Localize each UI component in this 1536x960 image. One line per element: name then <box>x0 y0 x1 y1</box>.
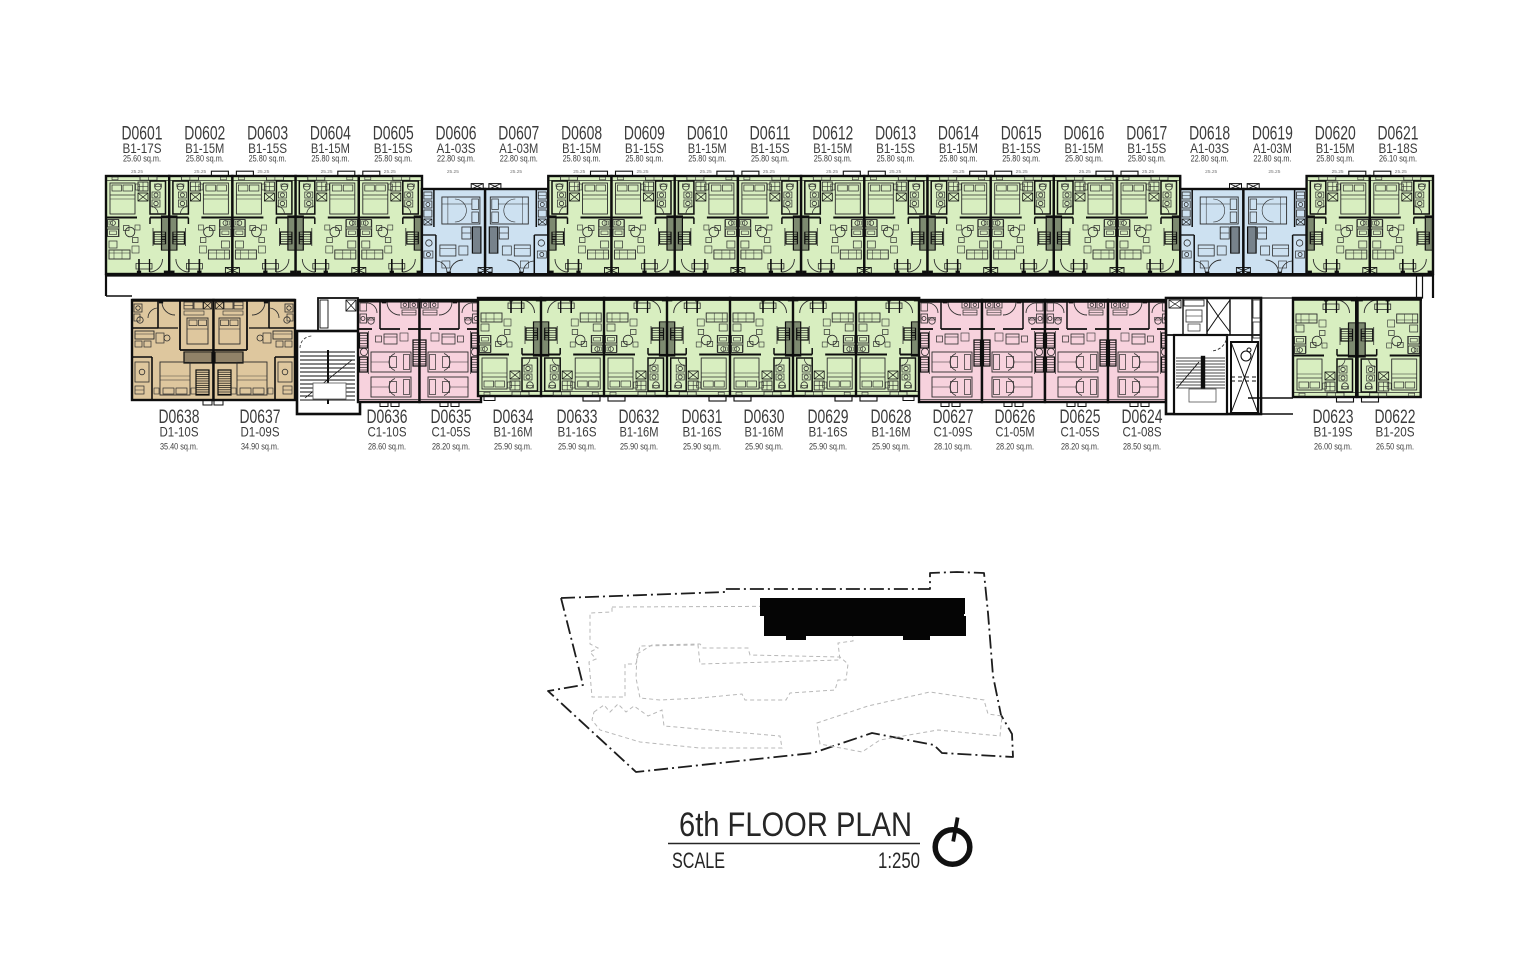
svg-text:25.25: 25.25 <box>194 169 207 174</box>
svg-text:25.90 sq.m.: 25.90 sq.m. <box>620 442 658 452</box>
svg-text:25.25: 25.25 <box>1395 169 1408 174</box>
svg-text:25.25: 25.25 <box>447 169 460 174</box>
svg-text:B1-20S: B1-20S <box>1376 425 1415 440</box>
svg-text:25.25: 25.25 <box>700 169 713 174</box>
svg-text:25.80 sq.m.: 25.80 sq.m. <box>814 154 852 164</box>
svg-text:25.90 sq.m.: 25.90 sq.m. <box>683 442 721 452</box>
svg-text:25.25: 25.25 <box>131 169 144 174</box>
svg-text:26.00 sq.m.: 26.00 sq.m. <box>1314 442 1352 452</box>
svg-text:25.80 sq.m.: 25.80 sq.m. <box>939 154 977 164</box>
svg-text:25.80 sq.m.: 25.80 sq.m. <box>751 154 789 164</box>
svg-text:22.80 sq.m.: 22.80 sq.m. <box>437 154 475 164</box>
svg-text:25.80 sq.m.: 25.80 sq.m. <box>186 154 224 164</box>
svg-text:28.60 sq.m.: 28.60 sq.m. <box>368 442 406 452</box>
svg-text:25.25: 25.25 <box>384 169 397 174</box>
svg-text:B1-16M: B1-16M <box>872 425 911 440</box>
svg-text:B1-16S: B1-16S <box>558 425 597 440</box>
svg-text:25.25: 25.25 <box>1268 169 1281 174</box>
svg-text:25.25: 25.25 <box>826 169 839 174</box>
svg-text:22.80 sq.m.: 22.80 sq.m. <box>1191 154 1229 164</box>
svg-text:C1-05S: C1-05S <box>432 425 471 440</box>
svg-text:25.90 sq.m.: 25.90 sq.m. <box>745 442 783 452</box>
svg-text:25.25: 25.25 <box>321 169 334 174</box>
svg-text:B1-16S: B1-16S <box>683 425 722 440</box>
svg-text:28.20 sq.m.: 28.20 sq.m. <box>1061 442 1099 452</box>
svg-text:SCALE: SCALE <box>672 848 725 873</box>
svg-text:28.50 sq.m.: 28.50 sq.m. <box>1123 442 1161 452</box>
svg-text:D1-09S: D1-09S <box>241 425 280 440</box>
svg-text:25.80 sq.m.: 25.80 sq.m. <box>249 154 287 164</box>
svg-text:25.80 sq.m.: 25.80 sq.m. <box>625 154 663 164</box>
svg-text:B1-16M: B1-16M <box>620 425 659 440</box>
svg-text:B1-16S: B1-16S <box>809 425 848 440</box>
svg-text:C1-05M: C1-05M <box>996 425 1035 440</box>
svg-text:35.40 sq.m.: 35.40 sq.m. <box>160 442 198 452</box>
svg-text:25.25: 25.25 <box>889 169 902 174</box>
svg-text:25.90 sq.m.: 25.90 sq.m. <box>494 442 532 452</box>
svg-text:25.80 sq.m.: 25.80 sq.m. <box>374 154 412 164</box>
svg-text:25.80 sq.m.: 25.80 sq.m. <box>311 154 349 164</box>
svg-text:25.80 sq.m.: 25.80 sq.m. <box>1128 154 1166 164</box>
svg-text:6th FLOOR PLAN: 6th FLOOR PLAN <box>679 806 912 844</box>
svg-text:28.20 sq.m.: 28.20 sq.m. <box>432 442 470 452</box>
svg-text:B1-16M: B1-16M <box>745 425 784 440</box>
svg-text:C1-09S: C1-09S <box>934 425 973 440</box>
svg-text:C1-10S: C1-10S <box>368 425 407 440</box>
svg-text:D1-10S: D1-10S <box>160 425 199 440</box>
svg-text:B1-19S: B1-19S <box>1314 425 1353 440</box>
svg-text:25.25: 25.25 <box>763 169 776 174</box>
svg-text:25.25: 25.25 <box>257 169 270 174</box>
svg-text:25.80 sq.m.: 25.80 sq.m. <box>1316 154 1354 164</box>
svg-text:22.80 sq.m.: 22.80 sq.m. <box>500 154 538 164</box>
svg-text:25.90 sq.m.: 25.90 sq.m. <box>872 442 910 452</box>
svg-text:25.25: 25.25 <box>637 169 650 174</box>
svg-text:25.60 sq.m.: 25.60 sq.m. <box>123 154 161 164</box>
svg-text:B1-16M: B1-16M <box>494 425 533 440</box>
svg-text:26.10 sq.m.: 26.10 sq.m. <box>1379 154 1417 164</box>
svg-text:28.20 sq.m.: 28.20 sq.m. <box>996 442 1034 452</box>
svg-text:25.80 sq.m.: 25.80 sq.m. <box>877 154 915 164</box>
svg-text:25.25: 25.25 <box>1079 169 1092 174</box>
svg-text:25.25: 25.25 <box>953 169 966 174</box>
svg-text:C1-05S: C1-05S <box>1061 425 1100 440</box>
svg-text:C1-08S: C1-08S <box>1123 425 1162 440</box>
svg-text:1:250: 1:250 <box>878 848 920 873</box>
svg-text:25.80 sq.m.: 25.80 sq.m. <box>1065 154 1103 164</box>
svg-text:28.10 sq.m.: 28.10 sq.m. <box>934 442 972 452</box>
svg-text:25.25: 25.25 <box>1142 169 1155 174</box>
svg-text:25.25: 25.25 <box>1016 169 1029 174</box>
svg-text:26.50 sq.m.: 26.50 sq.m. <box>1376 442 1414 452</box>
svg-text:25.80 sq.m.: 25.80 sq.m. <box>688 154 726 164</box>
svg-text:25.25: 25.25 <box>1205 169 1218 174</box>
svg-text:25.25: 25.25 <box>573 169 586 174</box>
svg-text:25.90 sq.m.: 25.90 sq.m. <box>558 442 596 452</box>
svg-text:25.80 sq.m.: 25.80 sq.m. <box>1002 154 1040 164</box>
svg-text:25.25: 25.25 <box>1332 169 1345 174</box>
svg-text:25.90 sq.m.: 25.90 sq.m. <box>809 442 847 452</box>
svg-text:22.80 sq.m.: 22.80 sq.m. <box>1253 154 1291 164</box>
svg-text:34.90 sq.m.: 34.90 sq.m. <box>241 442 279 452</box>
svg-text:25.25: 25.25 <box>510 169 523 174</box>
svg-text:25.80 sq.m.: 25.80 sq.m. <box>563 154 601 164</box>
